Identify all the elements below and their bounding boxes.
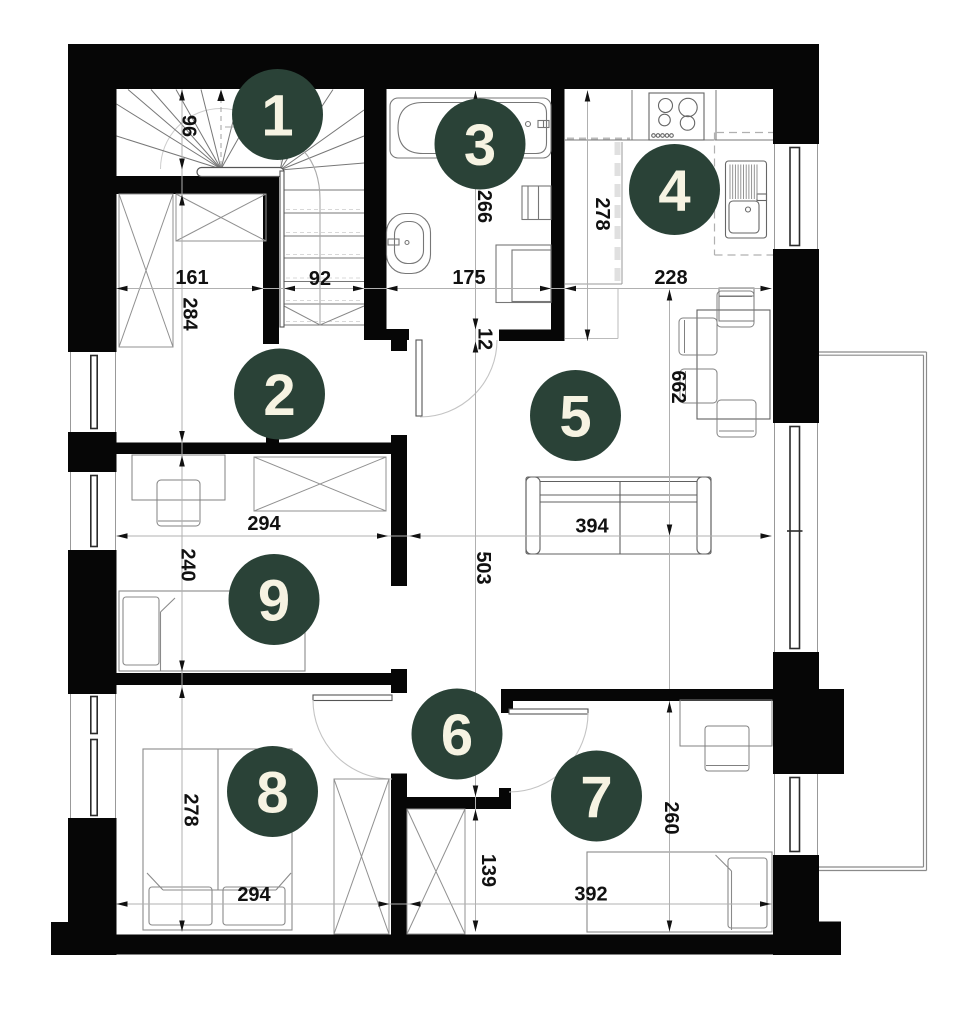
svg-text:8: 8 [256, 761, 288, 826]
svg-text:278: 278 [591, 197, 613, 230]
svg-text:96: 96 [178, 115, 200, 137]
svg-text:2: 2 [263, 363, 295, 428]
svg-text:278: 278 [180, 793, 202, 826]
svg-text:228: 228 [654, 267, 687, 289]
svg-text:175: 175 [452, 267, 485, 289]
svg-text:5: 5 [559, 385, 591, 450]
svg-text:7: 7 [580, 765, 612, 830]
svg-text:240: 240 [177, 548, 199, 581]
svg-text:12: 12 [474, 328, 496, 350]
svg-text:294: 294 [237, 884, 271, 906]
svg-text:394: 394 [575, 516, 609, 538]
svg-text:161: 161 [175, 267, 208, 289]
svg-text:503: 503 [472, 551, 494, 584]
svg-text:3: 3 [464, 113, 496, 178]
svg-text:260: 260 [660, 801, 682, 834]
svg-text:294: 294 [247, 513, 281, 535]
svg-text:4: 4 [658, 159, 690, 224]
svg-text:139: 139 [477, 854, 499, 887]
svg-text:9: 9 [258, 569, 290, 634]
svg-text:662: 662 [667, 370, 689, 403]
svg-text:266: 266 [473, 190, 495, 223]
svg-text:92: 92 [309, 268, 331, 290]
svg-text:392: 392 [574, 884, 607, 906]
svg-text:6: 6 [441, 703, 473, 768]
svg-text:284: 284 [179, 297, 201, 331]
svg-text:1: 1 [261, 84, 293, 149]
